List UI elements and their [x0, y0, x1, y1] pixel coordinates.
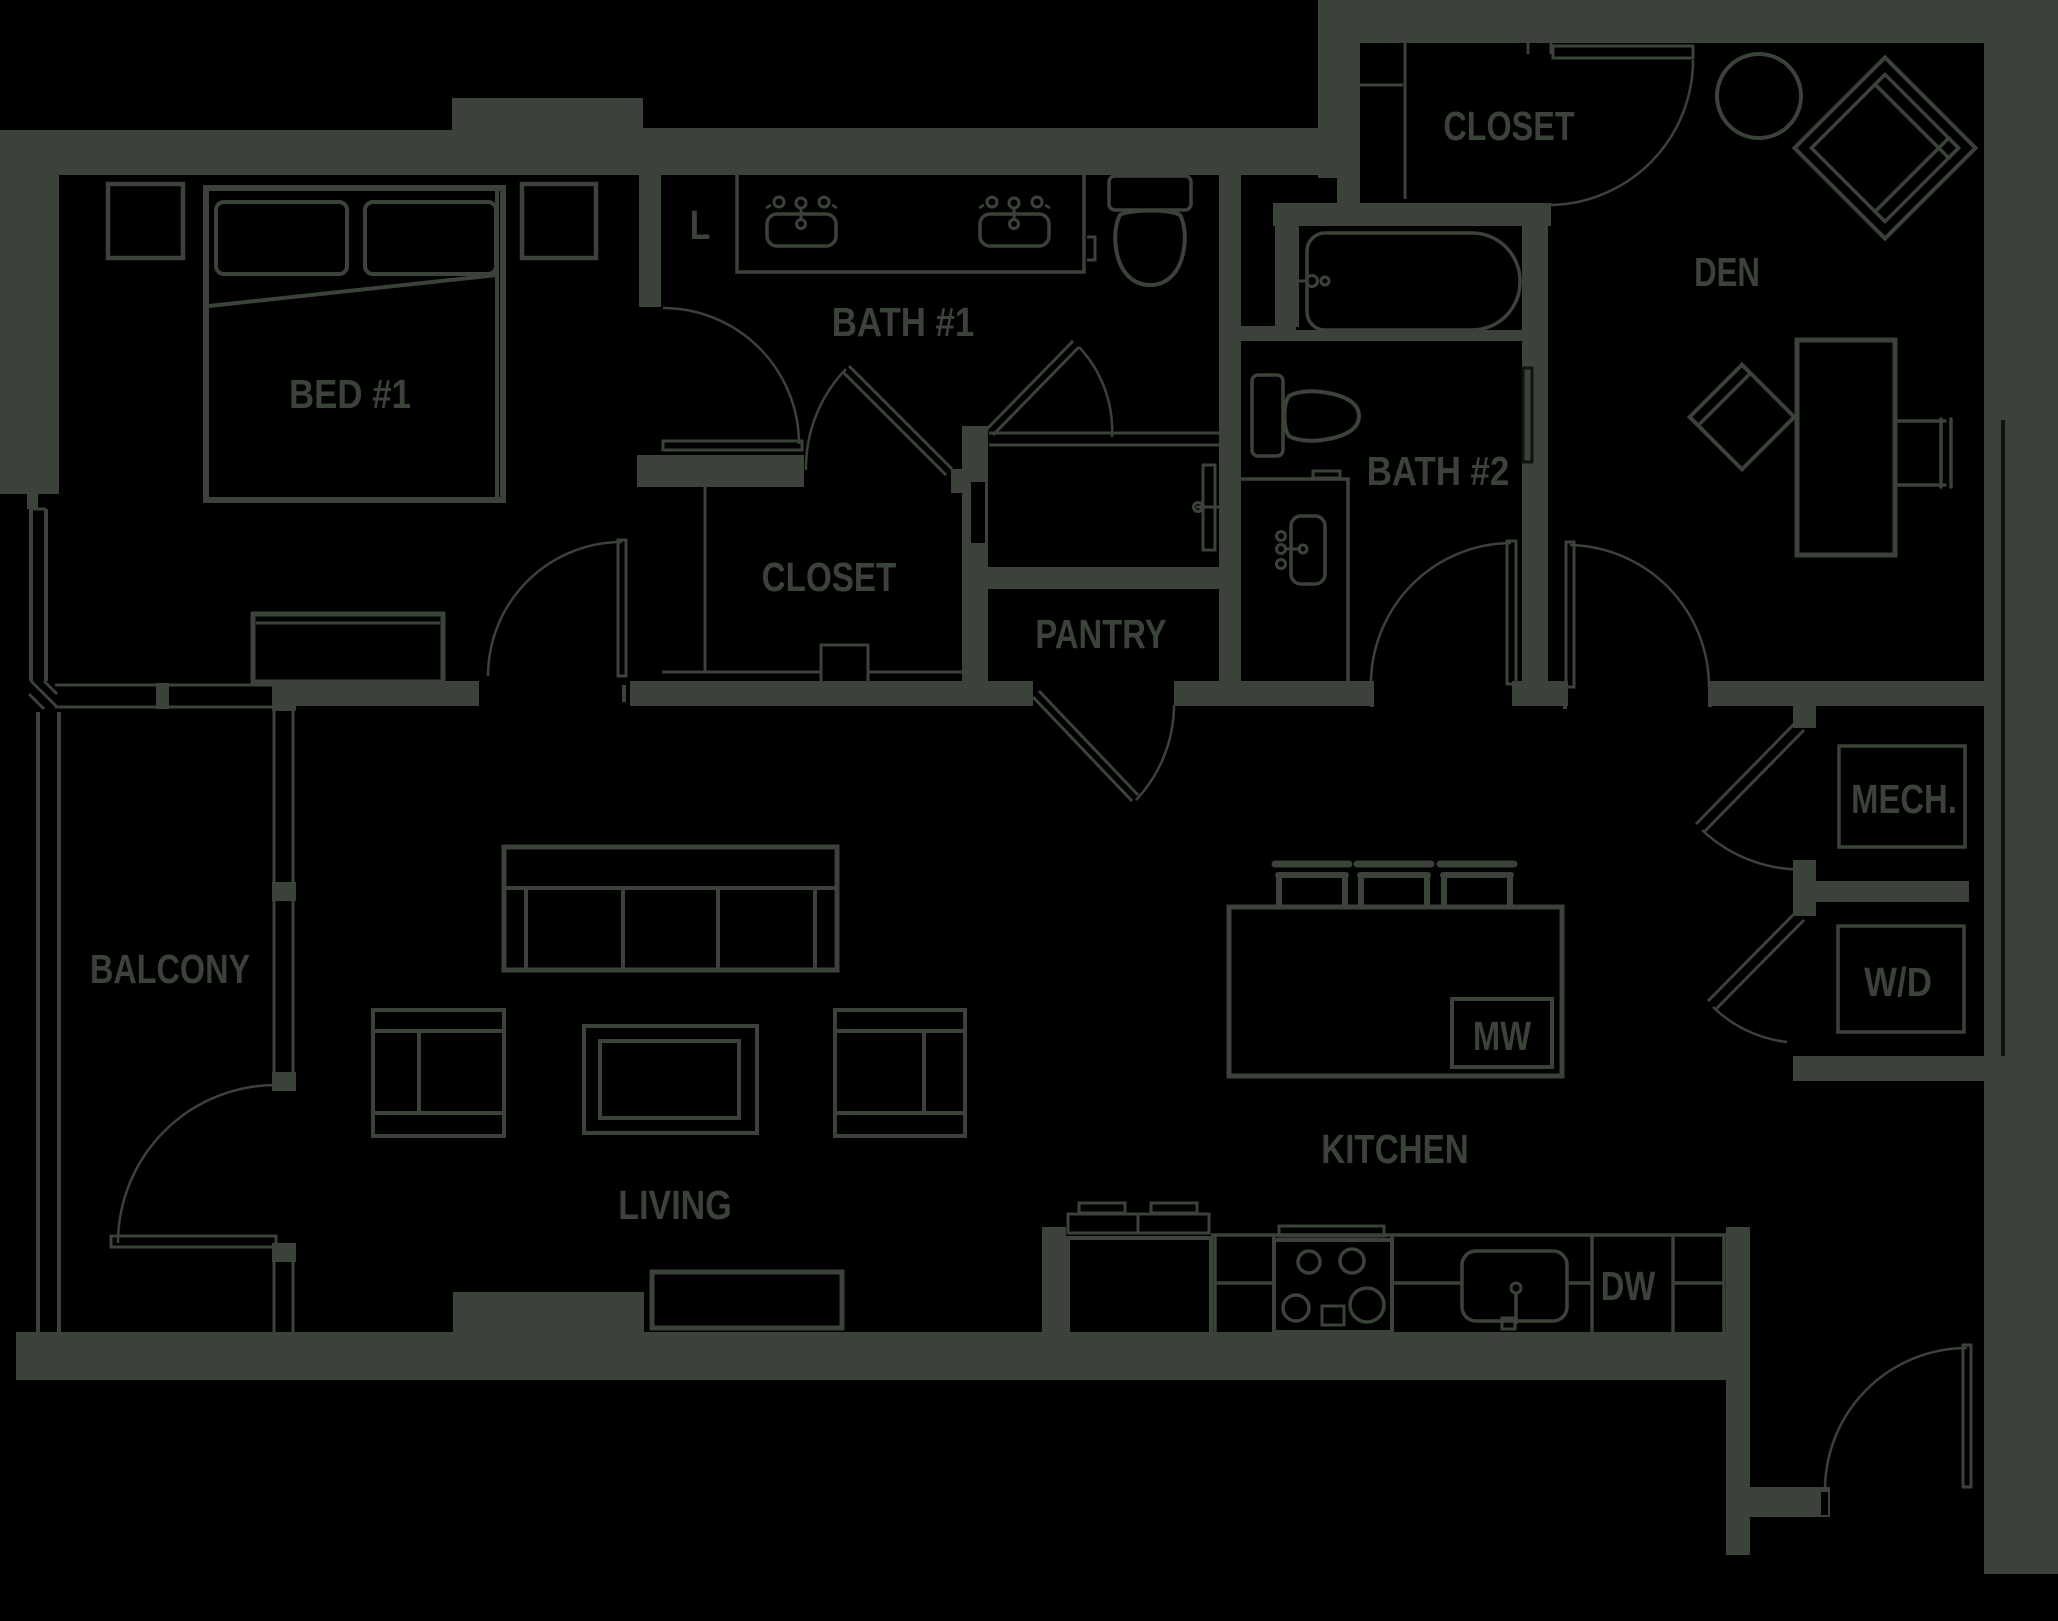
svg-text:BATH #1: BATH #1	[832, 300, 975, 345]
svg-text:BED #1: BED #1	[289, 372, 411, 417]
svg-text:BALCONY: BALCONY	[90, 946, 250, 991]
svg-text:DEN: DEN	[1694, 249, 1760, 295]
svg-text:KITCHEN: KITCHEN	[1321, 1126, 1469, 1172]
svg-text:MW: MW	[1473, 1012, 1531, 1058]
svg-text:LIVING: LIVING	[618, 1182, 731, 1228]
svg-text:PANTRY: PANTRY	[1035, 610, 1166, 656]
svg-text:BATH #2: BATH #2	[1367, 449, 1510, 494]
svg-text:DW: DW	[1601, 1262, 1656, 1308]
svg-text:MECH.: MECH.	[1851, 775, 1957, 821]
svg-text:L: L	[690, 202, 711, 248]
svg-text:CLOSET: CLOSET	[1443, 103, 1575, 148]
svg-text:W/D: W/D	[1864, 960, 1932, 1005]
svg-text:CLOSET: CLOSET	[762, 554, 897, 600]
